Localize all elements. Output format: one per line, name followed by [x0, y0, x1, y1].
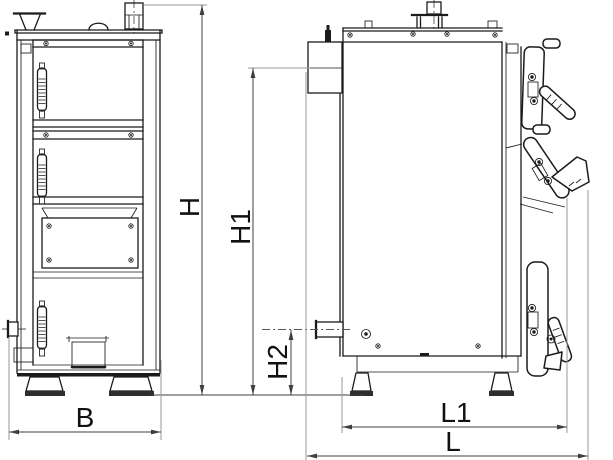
dimension-l: L [307, 426, 588, 458]
dimension-h1: H1 [225, 68, 256, 395]
ash-door-side [527, 262, 573, 376]
exchanger-cover-panel [33, 218, 143, 278]
side-feet [350, 373, 514, 396]
lifting-handle-icon [89, 23, 108, 30]
top-knob-rear [365, 21, 372, 28]
label-b: B [76, 402, 95, 433]
label-h: H [174, 197, 205, 217]
boiler-dimensional-drawing: H H1 H2 B L1 L [0, 0, 613, 460]
side-body [340, 28, 521, 372]
return-pipe-front [8, 321, 18, 337]
flue-sensor-icon [325, 30, 331, 42]
hinge-strip-1 [38, 63, 47, 118]
upper-door-side [522, 39, 578, 134]
upper-door-handle [537, 84, 577, 122]
middle-door-open [506, 135, 589, 213]
front-body [5, 30, 162, 373]
hinge-strip-3 [38, 301, 47, 356]
side-view [308, 0, 589, 396]
label-l1: L1 [440, 397, 471, 428]
foot-front-right [110, 377, 152, 391]
loading-door-upper [33, 40, 143, 127]
dimension-b: B [9, 402, 161, 434]
dimension-h: H [174, 5, 205, 395]
sensor-pocket-front [21, 44, 31, 53]
top-knob-front [488, 21, 497, 28]
front-view [2, 0, 162, 396]
loading-door-lower [33, 131, 143, 204]
foot-side-rear [352, 373, 371, 391]
label-h2: H2 [262, 344, 293, 380]
front-base [17, 365, 160, 396]
sensor-pocket-side [507, 44, 518, 53]
foot-side-front [491, 373, 512, 391]
chimney-flue-side [412, 2, 447, 28]
hinge-strip-2 [38, 149, 47, 204]
safety-outlet [14, 14, 45, 31]
ash-hatch [66, 336, 109, 368]
dimension-l1: L1 [342, 397, 567, 429]
label-l: L [445, 426, 461, 457]
foot-front-left [26, 377, 63, 391]
flue-gas-box [308, 25, 342, 93]
dimension-h2: H2 [262, 330, 294, 395]
label-h1: H1 [225, 209, 256, 245]
transition-strip [42, 208, 137, 218]
drawing-canvas: H H1 H2 B L1 L [0, 0, 613, 460]
